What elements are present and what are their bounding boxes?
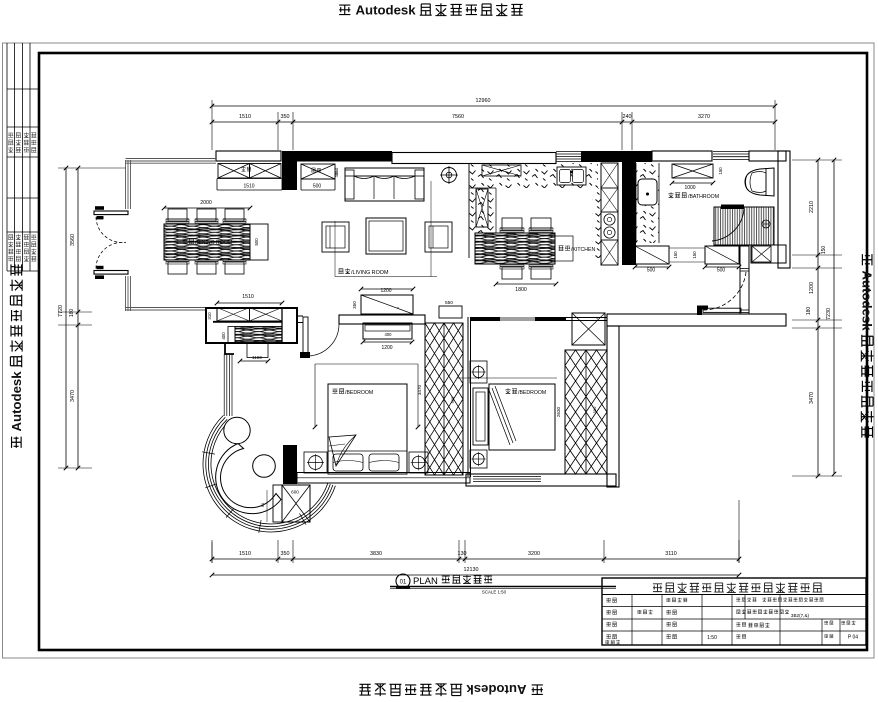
svg-text:3470: 3470 [417, 384, 422, 395]
svg-text:500: 500 [313, 184, 322, 190]
svg-text:1200: 1200 [381, 345, 392, 351]
svg-text:P 04: P 04 [848, 635, 858, 641]
svg-text:180: 180 [69, 309, 75, 318]
svg-text:500: 500 [717, 268, 726, 274]
svg-text:Autodesk: Autodesk [9, 371, 24, 432]
svg-text:310: 310 [207, 312, 212, 320]
svg-text:/BEDROOM: /BEDROOM [345, 390, 373, 396]
svg-text:3470: 3470 [70, 390, 76, 402]
svg-text:3200: 3200 [528, 551, 540, 557]
svg-text:2000: 2000 [200, 200, 212, 206]
svg-text:3830: 3830 [370, 551, 382, 557]
svg-text:/BATHROOM: /BATHROOM [688, 194, 719, 200]
svg-text:550: 550 [445, 300, 453, 306]
svg-text:7720: 7720 [58, 305, 64, 317]
svg-text:150: 150 [692, 251, 697, 259]
svg-text:550: 550 [450, 396, 455, 403]
svg-text:500: 500 [254, 238, 259, 246]
svg-text:1510: 1510 [242, 294, 254, 300]
svg-text:3B2(7,&): 3B2(7,&) [791, 613, 810, 618]
svg-text:240: 240 [623, 114, 632, 120]
svg-text:Autodesk: Autodesk [356, 3, 417, 18]
svg-text:350: 350 [334, 167, 339, 175]
svg-text:1510: 1510 [243, 184, 254, 190]
svg-text:600: 600 [291, 490, 299, 495]
svg-text:3560: 3560 [70, 234, 76, 246]
svg-text:550: 550 [592, 406, 597, 413]
svg-text:/KITCHEN: /KITCHEN [571, 247, 595, 253]
svg-text:Autodesk: Autodesk [466, 682, 527, 697]
svg-text:350: 350 [281, 551, 290, 557]
svg-text:180: 180 [806, 307, 812, 316]
svg-text:/DINING ROOM: /DINING ROOM [195, 240, 232, 246]
svg-text:400: 400 [385, 332, 393, 337]
svg-text:2630: 2630 [556, 406, 561, 417]
svg-text:1:50: 1:50 [707, 635, 717, 641]
svg-text:60: 60 [260, 502, 265, 507]
svg-text:2210: 2210 [809, 201, 815, 213]
svg-text:12130: 12130 [464, 567, 479, 573]
svg-text:PLAN: PLAN [413, 576, 438, 587]
svg-text:150: 150 [673, 251, 678, 259]
svg-text:1150: 1150 [252, 355, 262, 360]
svg-text:7230: 7230 [826, 308, 832, 320]
svg-text:3270: 3270 [698, 114, 710, 120]
svg-text:12960: 12960 [476, 98, 491, 104]
svg-text:350: 350 [352, 301, 357, 309]
svg-text:/BEDROOM: /BEDROOM [518, 390, 546, 396]
svg-text:400: 400 [221, 332, 226, 340]
svg-text:150: 150 [821, 246, 827, 255]
svg-text:Autodesk: Autodesk [859, 271, 874, 332]
svg-text:7560: 7560 [452, 114, 464, 120]
svg-text:1510: 1510 [239, 114, 251, 120]
svg-text:1510: 1510 [239, 551, 251, 557]
svg-text:1200: 1200 [809, 282, 815, 294]
svg-text:500: 500 [647, 268, 656, 274]
svg-text:350: 350 [281, 114, 290, 120]
svg-text:150: 150 [718, 167, 723, 175]
svg-text:/LIVING ROOM: /LIVING ROOM [351, 270, 389, 276]
svg-text:01: 01 [400, 580, 407, 586]
svg-text:1000: 1000 [684, 185, 695, 191]
svg-text:3110: 3110 [665, 551, 677, 557]
svg-text:1800: 1800 [515, 287, 527, 293]
svg-text:SCALE 1:50: SCALE 1:50 [482, 590, 507, 595]
svg-text:3470: 3470 [809, 392, 815, 404]
